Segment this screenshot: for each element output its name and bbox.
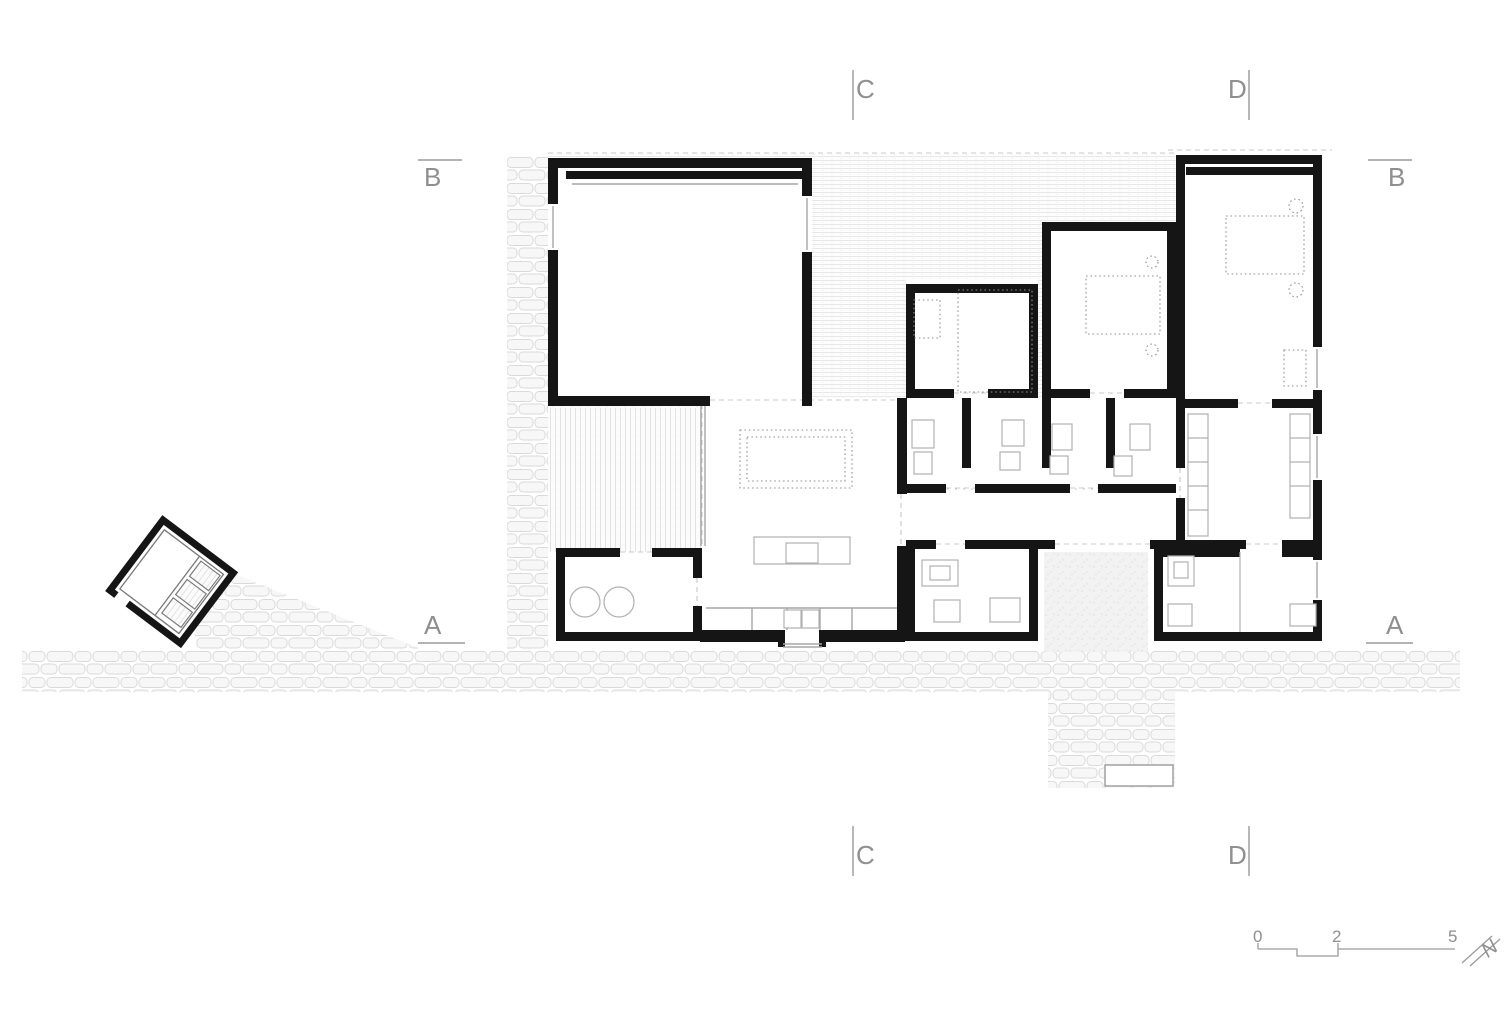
entry-court-texture <box>1044 552 1148 652</box>
section-marker-d-bottom: D <box>1228 842 1247 868</box>
section-marker-a-left: A <box>424 612 441 638</box>
scale-bar <box>1258 943 1455 956</box>
floor-plan-canvas <box>0 0 1512 1013</box>
section-marker-d-top: D <box>1228 76 1247 102</box>
section-marker-b-right: B <box>1388 164 1405 190</box>
section-marker-c-top: C <box>856 76 875 102</box>
section-marker-b-left: B <box>424 164 441 190</box>
section-marker-c-bottom: C <box>856 842 875 868</box>
scale-tick-2: 2 <box>1332 928 1341 945</box>
scale-tick-5: 5 <box>1448 928 1457 945</box>
floor-plan-sheet: C D B B A A C D 0 2 5 N <box>0 0 1512 1013</box>
scale-tick-0: 0 <box>1253 928 1262 945</box>
entry-step <box>1105 765 1173 786</box>
section-marker-a-right: A <box>1386 612 1403 638</box>
